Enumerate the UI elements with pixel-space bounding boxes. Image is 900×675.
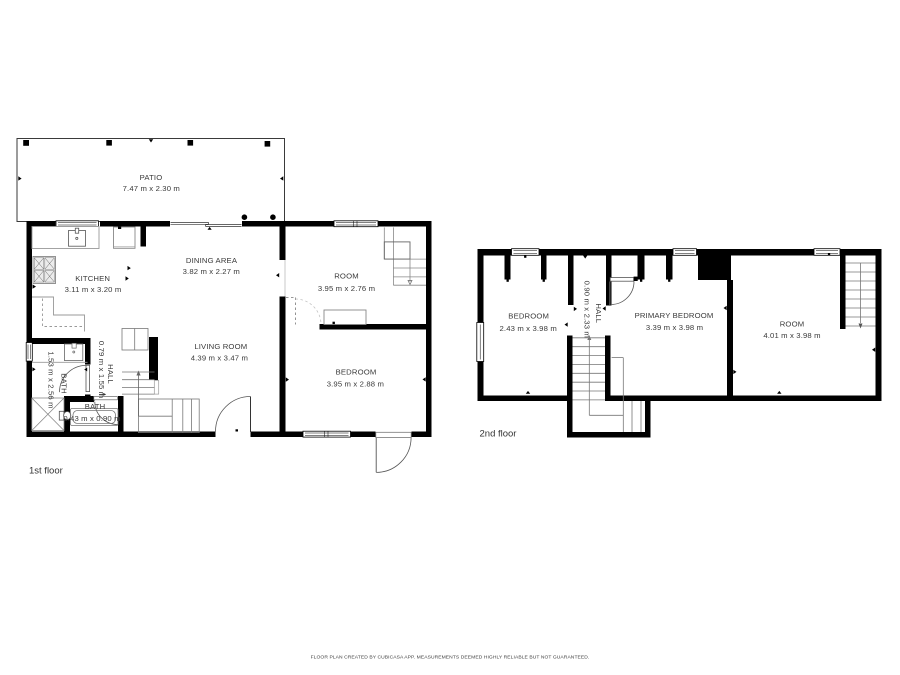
svg-text:3.39 m x 3.98 m: 3.39 m x 3.98 m [646, 323, 703, 332]
svg-text:7.47 m x 2.30 m: 7.47 m x 2.30 m [123, 184, 180, 193]
svg-text:0.79 m x 1.55 m: 0.79 m x 1.55 m [97, 341, 106, 398]
svg-text:2nd floor: 2nd floor [480, 429, 517, 440]
svg-text:3.95 m x 2.88 m: 3.95 m x 2.88 m [327, 380, 384, 389]
svg-text:3.82 m x 2.27 m: 3.82 m x 2.27 m [183, 267, 240, 276]
svg-text:ROOM: ROOM [780, 319, 805, 328]
svg-text:BEDROOM: BEDROOM [336, 368, 377, 377]
svg-text:HALL: HALL [106, 364, 115, 384]
svg-text:3.11 m x 3.20 m: 3.11 m x 3.20 m [65, 285, 122, 294]
svg-text:1.53 m x 2.56 m: 1.53 m x 2.56 m [47, 351, 56, 408]
svg-text:1st floor: 1st floor [29, 465, 63, 476]
svg-text:0.90 m x 2.33 m: 0.90 m x 2.33 m [583, 281, 592, 338]
svg-text:ROOM: ROOM [334, 272, 359, 281]
svg-text:FLOOR PLAN CREATED BY CUBICASA: FLOOR PLAN CREATED BY CUBICASA APP. MEAS… [311, 655, 590, 661]
svg-text:3.95 m x 2.76 m: 3.95 m x 2.76 m [318, 284, 375, 293]
svg-text:KITCHEN: KITCHEN [75, 274, 110, 283]
svg-text:BATH: BATH [85, 402, 106, 411]
svg-text:PRIMARY BEDROOM: PRIMARY BEDROOM [635, 311, 714, 320]
svg-text:4.01 m x 3.98 m: 4.01 m x 3.98 m [763, 331, 820, 340]
svg-text:BEDROOM: BEDROOM [508, 312, 549, 321]
svg-text:0.43 m x 0.90 m: 0.43 m x 0.90 m [63, 414, 120, 423]
svg-text:DINING AREA: DINING AREA [186, 256, 238, 265]
svg-text:BATH: BATH [59, 373, 68, 394]
svg-text:HALL: HALL [594, 303, 603, 323]
svg-text:LIVING ROOM: LIVING ROOM [194, 342, 247, 351]
svg-text:4.39 m x 3.47 m: 4.39 m x 3.47 m [191, 354, 248, 363]
svg-text:2.43 m x 3.98 m: 2.43 m x 3.98 m [500, 324, 557, 333]
svg-text:PATIO: PATIO [140, 173, 163, 182]
